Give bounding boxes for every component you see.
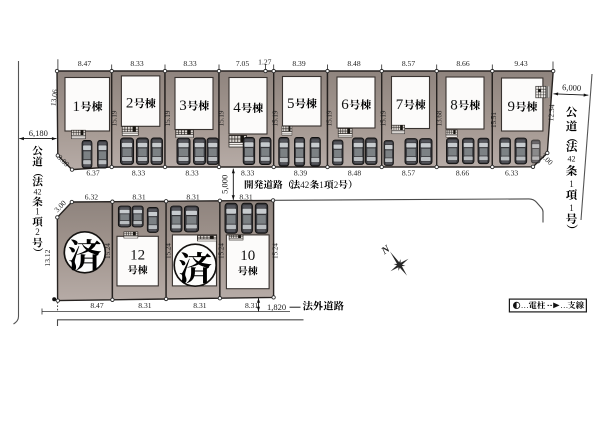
svg-text:8.57: 8.57: [402, 59, 415, 68]
svg-text:15.24: 15.24: [104, 243, 112, 259]
svg-text:…: …: [521, 301, 529, 310]
svg-text:8.33: 8.33: [130, 59, 143, 68]
svg-text:8.39: 8.39: [292, 59, 305, 68]
svg-text:15.24: 15.24: [217, 243, 225, 259]
svg-text:3: 3: [179, 98, 187, 114]
svg-text:8.33: 8.33: [183, 59, 196, 68]
svg-text:13.68: 13.68: [436, 110, 444, 126]
svg-text:9: 9: [507, 99, 515, 115]
svg-text:15.24: 15.24: [164, 243, 172, 259]
svg-text:8.31: 8.31: [132, 192, 145, 201]
svg-text:7: 7: [396, 97, 404, 113]
svg-text:8.31: 8.31: [239, 192, 252, 201]
svg-text:15.19: 15.19: [272, 110, 280, 126]
svg-text:13.12: 13.12: [43, 249, 52, 266]
svg-text:15.24: 15.24: [271, 243, 279, 259]
svg-text:5,000: 5,000: [219, 175, 229, 194]
svg-text:2: 2: [35, 227, 40, 237]
svg-text:42: 42: [34, 188, 42, 197]
svg-text:6: 6: [341, 97, 349, 113]
svg-text:12.34: 12.34: [546, 104, 556, 122]
svg-text:2: 2: [126, 96, 134, 112]
svg-text:8.48: 8.48: [347, 59, 360, 68]
svg-text:42: 42: [300, 180, 309, 190]
svg-text:15.51: 15.51: [490, 112, 498, 128]
svg-text:8.66: 8.66: [456, 169, 469, 178]
svg-text:8.31: 8.31: [138, 301, 151, 310]
svg-text:6.37: 6.37: [86, 169, 99, 178]
svg-text:1.27: 1.27: [258, 58, 271, 67]
svg-text:8.39: 8.39: [294, 169, 307, 178]
svg-text:9.43: 9.43: [514, 59, 527, 68]
svg-text:1: 1: [569, 179, 574, 189]
svg-text:1: 1: [569, 203, 574, 213]
svg-text:15.19: 15.19: [217, 110, 225, 126]
svg-text:5: 5: [287, 96, 295, 112]
svg-text:8: 8: [450, 98, 458, 114]
svg-text:8.31: 8.31: [245, 301, 258, 310]
svg-text:1,820: 1,820: [267, 302, 286, 312]
svg-text:8.48: 8.48: [348, 169, 361, 178]
svg-text:6,000: 6,000: [562, 82, 582, 93]
svg-text:15.19: 15.19: [111, 110, 119, 126]
svg-text:1: 1: [35, 207, 40, 217]
svg-text:15.19: 15.19: [380, 110, 388, 126]
svg-text:4: 4: [233, 100, 241, 116]
svg-text:12: 12: [130, 248, 145, 264]
svg-text:1: 1: [72, 99, 80, 115]
svg-text:10: 10: [240, 248, 255, 264]
svg-text:8.57: 8.57: [402, 169, 415, 178]
svg-text:8.33: 8.33: [185, 169, 198, 178]
svg-text:8.66: 8.66: [456, 59, 469, 68]
svg-text:8.31: 8.31: [186, 192, 199, 201]
svg-text:6.33: 6.33: [505, 169, 518, 178]
svg-text:15.19: 15.19: [325, 110, 333, 126]
svg-text:7.05: 7.05: [236, 59, 249, 68]
svg-text:8.33: 8.33: [241, 169, 254, 178]
svg-text:8.33: 8.33: [132, 169, 145, 178]
svg-text:8.47: 8.47: [78, 59, 91, 68]
svg-text:1: 1: [319, 180, 324, 190]
svg-text:8.31: 8.31: [193, 301, 206, 310]
svg-text:6.32: 6.32: [85, 192, 98, 201]
svg-text:6,180: 6,180: [29, 128, 48, 138]
svg-text:15.19: 15.19: [164, 110, 172, 126]
svg-text:2: 2: [334, 180, 339, 190]
svg-text:…: …: [560, 301, 568, 310]
svg-text:N: N: [379, 244, 393, 258]
svg-text:42: 42: [568, 155, 576, 164]
svg-text:8.47: 8.47: [90, 301, 103, 310]
